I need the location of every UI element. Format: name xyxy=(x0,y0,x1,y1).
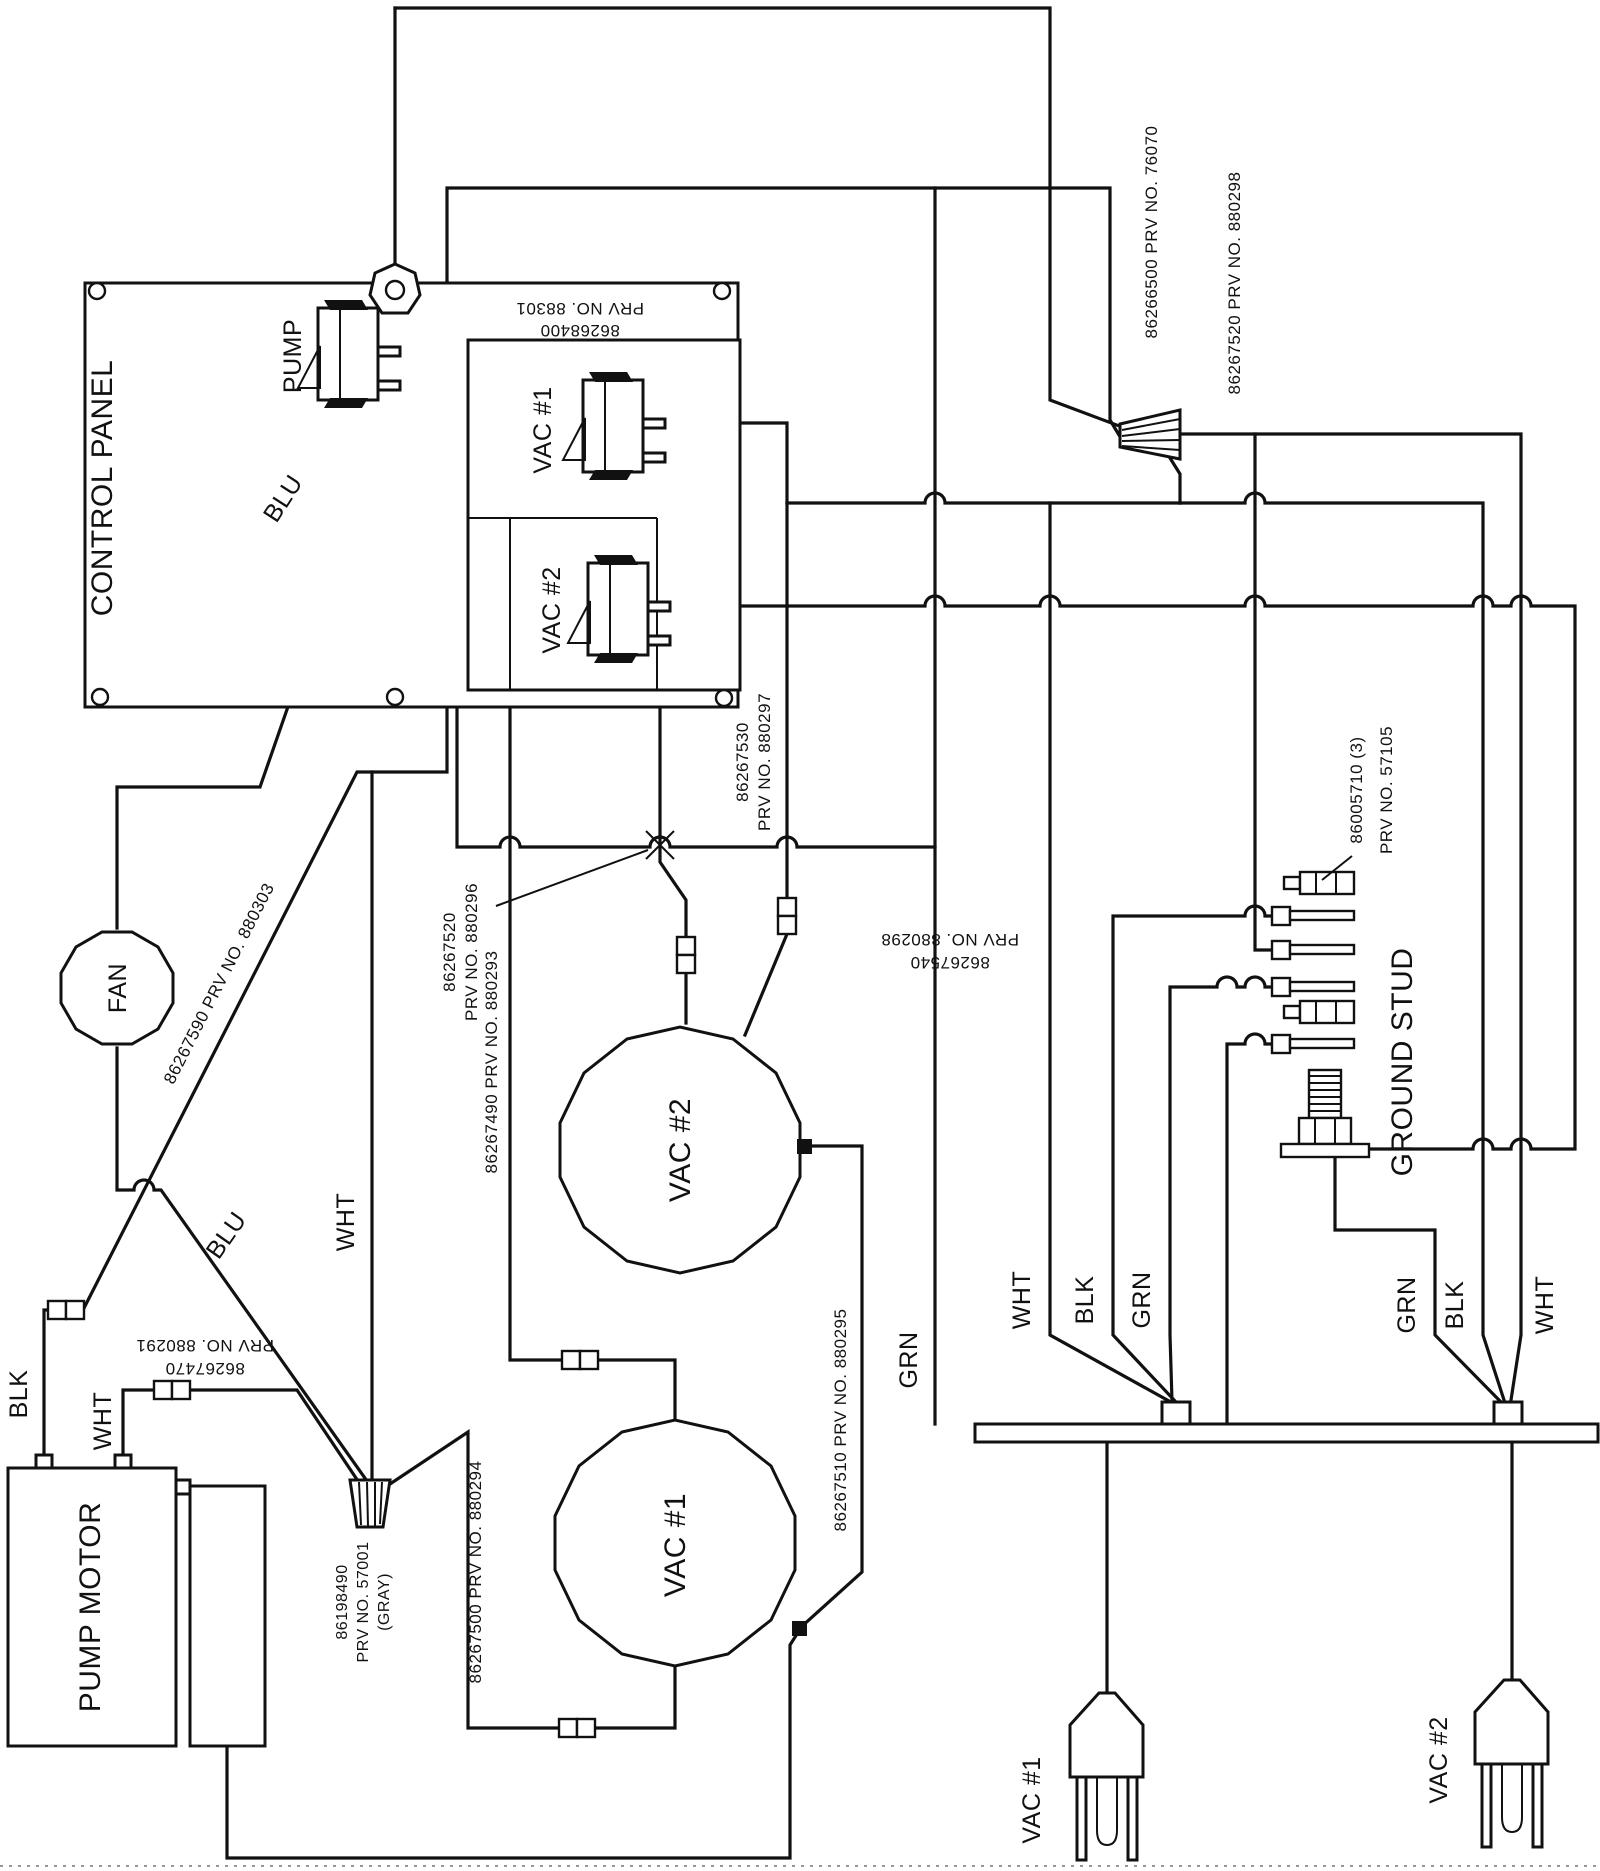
panel-screw-icon xyxy=(714,283,730,299)
wire-76070-label: 86266500 PRV NO. 76070 xyxy=(1142,126,1161,339)
vac1-terminal xyxy=(792,1621,807,1636)
wire-880293-label: 86267490 PRV NO. 880293 xyxy=(482,951,501,1174)
ring-terminal-icon xyxy=(1272,1035,1354,1053)
vac1-plug xyxy=(1070,1693,1143,1860)
panel-harness-prv-number: PRV NO. 88301 xyxy=(516,299,644,318)
panel-screw-icon xyxy=(716,690,732,706)
pump-switch-label: PUMP xyxy=(279,319,307,393)
splice-icon xyxy=(48,1301,84,1319)
vac1-switch-label: VAC #1 xyxy=(529,386,557,473)
wire-880291-prv-number: PRV NO. 880291 xyxy=(136,1336,274,1355)
plug-prong xyxy=(1533,1764,1542,1847)
wire-847-run xyxy=(457,707,935,847)
ground-stud xyxy=(1281,1070,1369,1157)
motor-terminal xyxy=(176,1480,190,1494)
splice-icon xyxy=(559,1719,595,1737)
fan-label: FAN xyxy=(104,963,132,1013)
strain-relief-icon xyxy=(1162,1402,1190,1424)
wire-880298-label: 86267520 PRV NO. 880298 xyxy=(1225,172,1244,395)
ring-terminals-prv-number: PRV NO. 57105 xyxy=(1377,726,1396,854)
wire-880303-label: 86267590 PRV NO. 880303 xyxy=(160,880,278,1087)
wire-nut-gray-icon xyxy=(350,1480,390,1527)
wire-blu-lower xyxy=(117,1048,367,1481)
pump-motor xyxy=(8,1455,265,1746)
grn-trunk-label: GRN xyxy=(895,1331,923,1388)
grn-right-label: GRN xyxy=(1393,1276,1421,1333)
plug-ground-prong xyxy=(1097,1777,1117,1845)
vac1-motor-label: VAC #1 xyxy=(659,1493,692,1597)
vac1-plug-label: VAC #1 xyxy=(1018,1756,1046,1843)
wire-motor-ground xyxy=(227,1634,797,1858)
plug-prong xyxy=(1482,1764,1491,1847)
vac2-plug-label: VAC #2 xyxy=(1425,1716,1453,1803)
gray-nut-prv-number: PRV NO. 57001 xyxy=(355,1542,372,1663)
blk-right-label: BLK xyxy=(1441,1281,1469,1330)
wire-cone-bottom xyxy=(1170,458,1180,503)
pump-motor-label: PUMP MOTOR xyxy=(74,1502,107,1713)
ring-terminal-icon xyxy=(1272,941,1354,959)
wire-grn-left xyxy=(1170,977,1272,1401)
plug-prong xyxy=(1077,1777,1086,1860)
wht-motor-lead-label: WHT xyxy=(89,1392,117,1450)
control-panel-label: CONTROL PANEL xyxy=(86,360,119,617)
panel-screw-icon xyxy=(387,689,403,705)
vac2-motor-label: VAC #2 xyxy=(664,1098,697,1202)
motor-junction-box xyxy=(190,1486,265,1746)
vac2-switch-label: VAC #2 xyxy=(538,566,566,653)
wire-880298b-prv-number: PRV NO. 880298 xyxy=(881,930,1019,949)
wire-880294-label: 86267500 PRV NO. 880294 xyxy=(466,1461,485,1684)
blk-motor-lead-label: BLK xyxy=(5,1370,33,1419)
wht-left-label: WHT xyxy=(1008,1271,1036,1329)
strain-relief-bar xyxy=(975,1402,1598,1442)
wht-right-label: WHT xyxy=(1531,1276,1559,1334)
vac2-terminal xyxy=(797,1139,812,1154)
wire-880295-label: 86267510 PRV NO. 880295 xyxy=(831,1309,850,1532)
wire-ha-ground-run xyxy=(670,596,1575,1149)
panel-screw-icon xyxy=(89,283,105,299)
motor-terminal xyxy=(115,1455,131,1468)
blk-left-label: BLK xyxy=(1071,1276,1099,1325)
ring-terminals-part-number: 86005710 (3) xyxy=(1347,736,1366,843)
wire-rt950-feed xyxy=(1255,434,1272,950)
splice-icon xyxy=(154,1381,190,1399)
ring-terminal-icon xyxy=(1272,907,1354,925)
panel-screw-icon xyxy=(92,689,108,705)
wire-880296-prv-number: PRV NO. 880296 xyxy=(462,883,481,1021)
splice-icon xyxy=(778,898,796,934)
wire-880296-part-number: 86267520 xyxy=(440,912,459,992)
panel-nut-icon xyxy=(370,264,420,313)
motor-terminal xyxy=(36,1455,52,1468)
panel-harness-part-number: 86268400 xyxy=(540,321,620,340)
wire-880297-part-number: 86267530 xyxy=(733,722,752,802)
strain-relief-icon xyxy=(1494,1402,1522,1424)
wiring-diagram-page: CONTROL PANEL PUMP VAC #1 VAC #2 8626840… xyxy=(0,0,1600,1871)
ring-terminal-icon xyxy=(1272,978,1354,996)
plug-prong xyxy=(1128,1777,1137,1860)
ring-terminals xyxy=(1272,856,1354,1053)
wire-880297-prv-number: PRV NO. 880297 xyxy=(755,693,774,831)
wire-nut-right-icon xyxy=(1120,410,1180,459)
vac2-plug xyxy=(1475,1680,1548,1847)
gray-nut-color-note: (GRAY) xyxy=(376,1573,393,1631)
wire-880291-part-number: 86267470 xyxy=(165,1359,245,1378)
grn-left-label: GRN xyxy=(1128,1271,1156,1328)
wht-wire-label-mid: WHT xyxy=(332,1193,360,1251)
splice-icon xyxy=(677,937,695,973)
plug-ground-prong xyxy=(1502,1764,1522,1832)
wire-hb xyxy=(787,493,1180,503)
block-connector-icon xyxy=(1284,1001,1354,1023)
schematic-canvas: CONTROL PANEL PUMP VAC #1 VAC #2 8626840… xyxy=(0,0,1600,1871)
wire-rt1044-feed xyxy=(1227,1034,1272,1424)
wire-880298b-part-number: 86267540 xyxy=(910,953,990,972)
block-connector-icon xyxy=(1284,872,1354,894)
splice-icon xyxy=(562,1351,598,1369)
gray-nut-part-number: 86198490 xyxy=(334,1564,351,1639)
wire-wht-left xyxy=(1050,503,1169,1401)
crimp-x-mark xyxy=(496,831,674,906)
ground-stud-label: GROUND STUD xyxy=(1386,948,1419,1177)
